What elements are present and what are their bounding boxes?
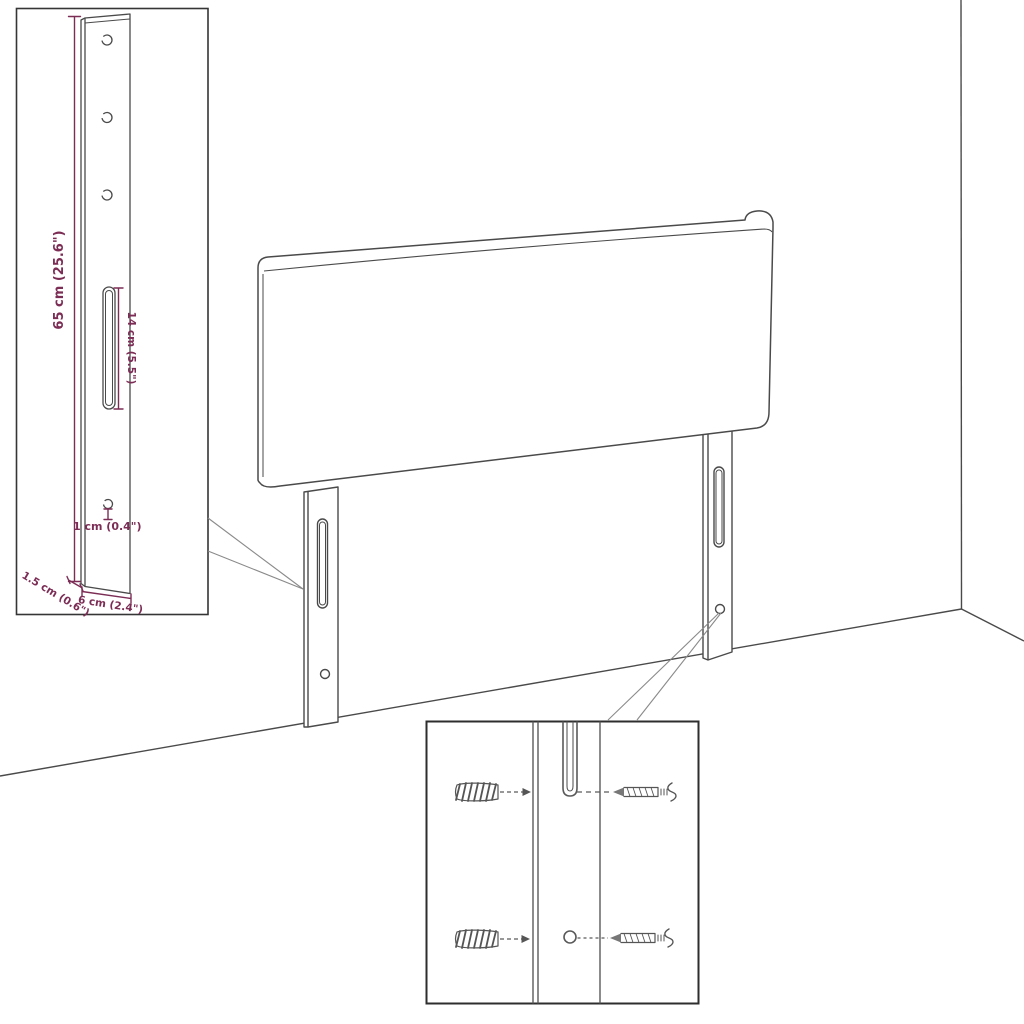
- bracket-callout-line-1: [208, 518, 303, 589]
- diagram-canvas: 65 cm (25.6") 14 cm (5.5") 1 cm (0.4") 1…: [0, 0, 1024, 1024]
- left-leg-body: [304, 487, 338, 727]
- mounting-detail-inset: [427, 722, 699, 1004]
- mounting-callout-line-2: [637, 613, 721, 720]
- right-leg: [703, 428, 732, 660]
- left-leg: [304, 487, 338, 727]
- dim-hole-label: 1 cm (0.4"): [73, 520, 142, 533]
- bracket-callout-line-2: [208, 551, 303, 589]
- mounting-callout-line-1: [608, 613, 719, 720]
- headboard-outline: [258, 211, 773, 487]
- bracket-detail-inset: 65 cm (25.6") 14 cm (5.5") 1 cm (0.4") 1…: [17, 9, 209, 620]
- product-dimension-diagram: 65 cm (25.6") 14 cm (5.5") 1 cm (0.4") 1…: [0, 0, 1024, 1024]
- wall-corner-line: [961, 0, 962, 609]
- callout-lines: [208, 518, 721, 720]
- floor-line-right: [962, 609, 1024, 641]
- dim-slot-label: 14 cm (5.5"): [125, 312, 137, 385]
- dim-height-label: 65 cm (25.6"): [52, 230, 67, 329]
- headboard-panel: [258, 211, 773, 487]
